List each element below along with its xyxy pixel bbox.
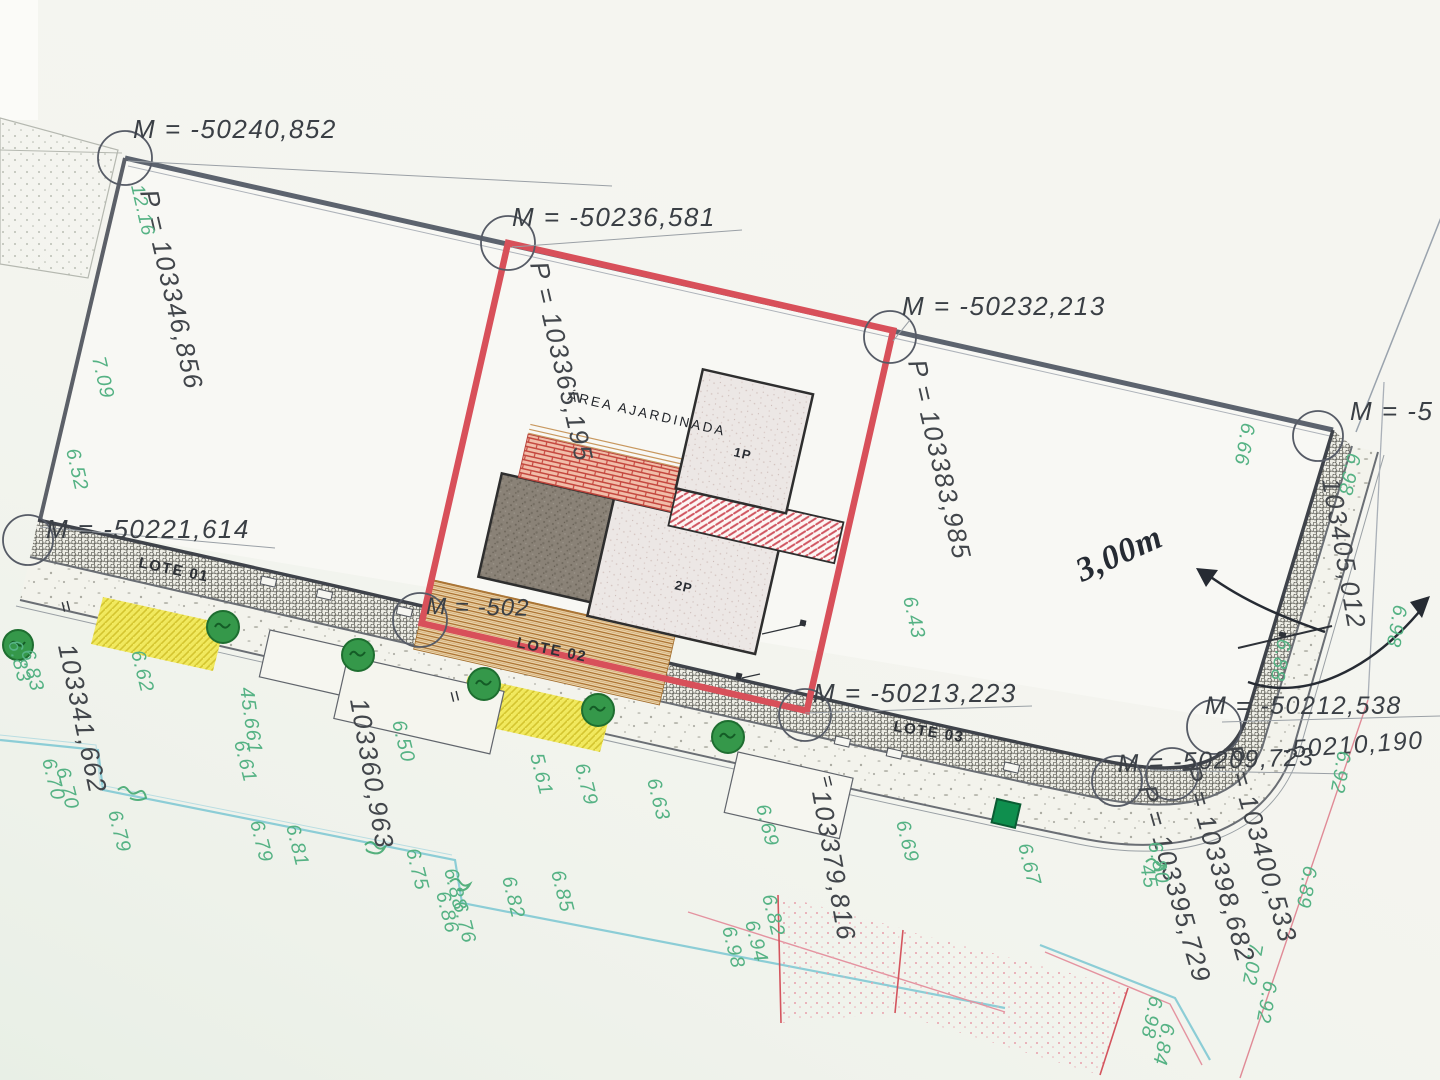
m-coord-50232: M = -50232,213 xyxy=(902,291,1106,321)
m-coord-edge-cut: M = -5 xyxy=(1350,396,1433,426)
scan-edge xyxy=(0,0,38,120)
site-plan-page: 3,00m ÁREA AJARDINADA M = -50240,852M = … xyxy=(0,0,1440,1080)
tree-icon xyxy=(342,639,374,671)
dim-tick xyxy=(736,673,742,679)
m-coord-50213: M = -50213,223 xyxy=(813,678,1017,708)
dim-tick xyxy=(1279,632,1286,637)
tree-icon xyxy=(712,721,744,753)
tree-icon xyxy=(582,694,614,726)
utility-box xyxy=(992,799,1021,828)
m-coord-50236: M = -50236,581 xyxy=(512,202,716,232)
m-coord-lote02-hidden: M = -502 xyxy=(426,593,530,622)
site-plan-drawing: 3,00m ÁREA AJARDINADA M = -50240,852M = … xyxy=(0,0,1440,1080)
m-coord-50212: M = -50212,538 xyxy=(1205,692,1402,720)
m-coord-50221: M = -50221,614 xyxy=(46,514,250,544)
dim-tick xyxy=(800,620,806,626)
m-coord-50240: M = -50240,852 xyxy=(133,114,337,144)
tree-icon xyxy=(468,668,500,700)
tree-icon xyxy=(207,611,239,643)
